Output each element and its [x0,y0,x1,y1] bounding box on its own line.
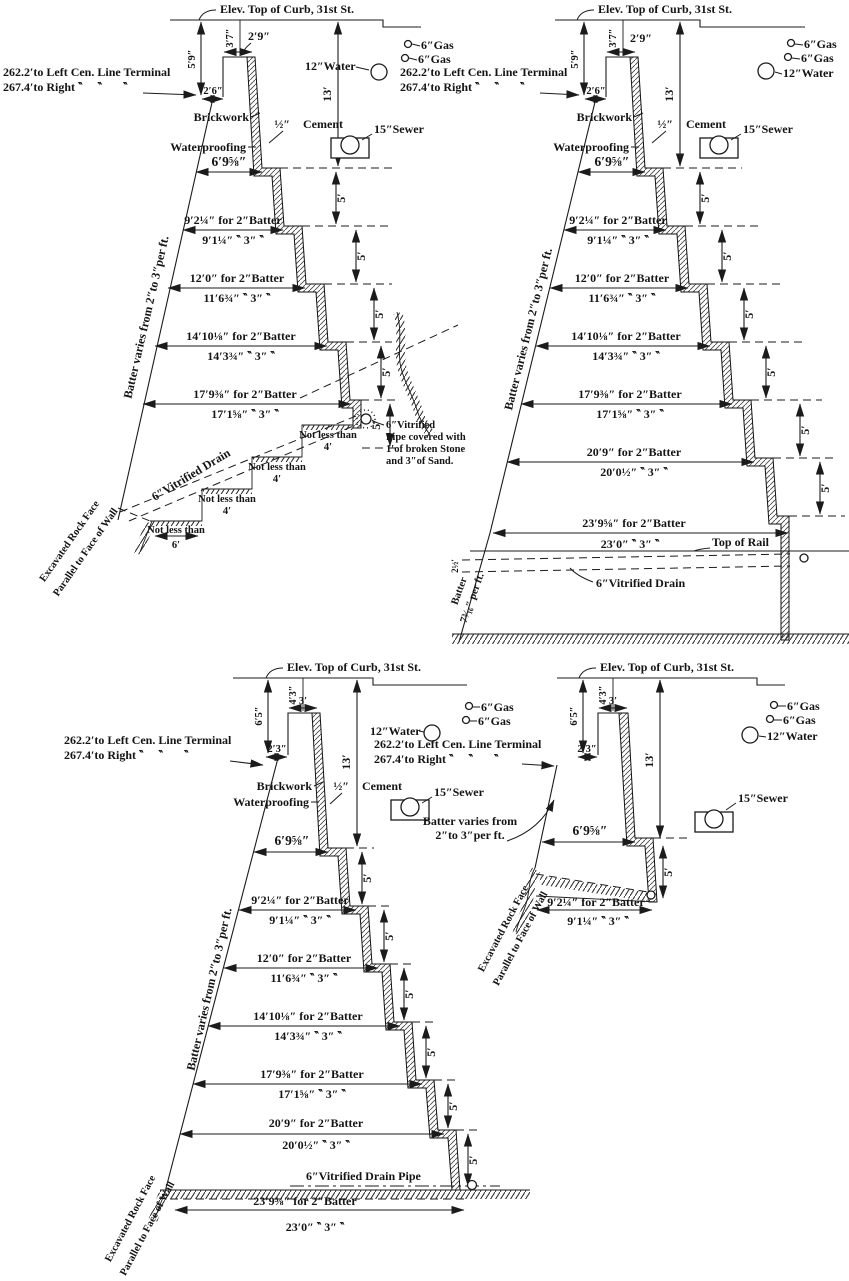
dim-leader-2-9 [243,43,251,52]
gas-main-icon [788,40,795,47]
drain-pipe-label: 6″Vitrified Drain Pipe [306,1169,422,1183]
dim-label-4-3: 4′3″ [288,685,299,704]
brickwork-label: Brickwork [577,110,633,124]
terminal-distance-line2: 267.4′to Right ‶ ‶ ‶ [400,80,525,94]
curb-label: Elev. Top of Curb, 31st St. [287,660,421,674]
dim-label-top-width: 6′9⅝″ [573,823,608,838]
svg-text:9′2¼″ for 2″Batter: 9′2¼″ for 2″Batter [251,893,349,907]
dim-label-13: 13′ [662,86,676,101]
dim-label-top-width: 6′9⅝″ [212,154,247,169]
svg-text:11′6¾″ ‶ 3″ ‶: 11′6¾″ ‶ 3″ ‶ [204,291,271,305]
svg-text:Not less than: Not less than [147,525,205,536]
cement-leader [269,131,283,143]
svg-text:9′2¼″ for 2″Batter: 9′2¼″ for 2″Batter [569,213,667,227]
sewer-icon [710,136,728,154]
batter-slope-line [165,758,278,1192]
svg-text:12′0″ for 2″Batter: 12′0″ for 2″Batter [190,271,285,285]
terminal-distance-line1: 262.2′to Left Cen. Line Terminal [374,737,542,751]
svg-text:14′3¾″ ‶ 3″ ‶: 14′3¾″ ‶ 3″ ‶ [592,349,660,363]
gas-label: 6″Gas [787,699,820,713]
svg-text:5′: 5′ [446,1101,460,1110]
dim-label-2-6: 2′6″ [203,86,222,97]
ground [160,1190,530,1199]
cement-thickness-label: ½″ [274,117,290,131]
svg-text:23′0″ ‶ 3″ ‶: 23′0″ ‶ 3″ ‶ [601,537,660,551]
cement-label: Cement [362,779,402,793]
dim-label-2-6: 2′6″ [586,86,605,97]
ground [452,634,849,644]
gas-label: 6″Gas [801,51,834,65]
svg-text:12′0″ for 2″Batter: 12′0″ for 2″Batter [575,271,670,285]
step-extension-lines [280,168,398,448]
svg-text:Not less than: Not less than [198,494,256,505]
gas-label: 6″Gas [421,38,454,52]
wall-face-band [619,713,657,902]
five-foot-label: 5′ [661,867,675,876]
curb-leader [577,10,594,20]
dim-label-6-5: 6′5″ [254,706,265,725]
utilities: 6″Gas 6″Gas 12″Water 15″Sewer [695,699,820,832]
batter-note: Batter varies from 2″to 3″per ft. [501,247,555,412]
gas-main-icon [466,703,473,710]
svg-text:1′of broken Stone: 1′of broken Stone [386,444,466,455]
svg-text:9′1¼″ ‶ 3″ ‶: 9′1¼″ ‶ 3″ ‶ [567,914,629,928]
drain-pipe-icon [361,414,371,424]
sewer-icon [401,798,419,816]
gas-main-icon [402,55,409,62]
svg-text:17′1⅝″ ‶ 3″ ‶: 17′1⅝″ ‶ 3″ ‶ [596,407,664,421]
svg-text:5′: 5′ [354,251,368,260]
dim-label-13: 13′ [642,752,656,767]
dim-label-2-9: 2′9″ [630,31,652,45]
svg-text:4′: 4′ [324,442,332,453]
cement-thickness-label: ½″ [657,117,673,131]
batter-dimension-rows: 9′2¼″ for 2″Batter 9′1¼″ ‶ 3″ ‶ [537,895,652,928]
svg-text:4′: 4′ [273,474,281,485]
svg-text:20′0½″ ‶ 3″ ‶: 20′0½″ ‶ 3″ ‶ [600,465,668,479]
svg-text:Not less than: Not less than [248,462,306,473]
pipe-note: 6″Vitrified Pipe covered with 1′of broke… [386,420,466,467]
top-of-rail-label: Top of Rail [712,535,770,549]
svg-text:6″Vitrified: 6″Vitrified [386,420,435,431]
curb-label: Elev. Top of Curb, 31st St. [600,660,734,674]
svg-text:11′6¾″ ‶ 3″ ‶: 11′6¾″ ‶ 3″ ‶ [589,291,656,305]
svg-text:5′: 5′ [818,483,832,492]
brickwork-label: Brickwork [194,110,250,124]
drain-pipe-icon [647,891,655,899]
retaining-wall-sections-figure: Elev. Top of Curb, 31st St. 5′9″ 3′7″ 2′… [0,0,849,1281]
water-main-icon [758,63,774,79]
gas-main-icon [405,41,412,48]
curb-leader [579,668,596,678]
svg-text:5′: 5′ [372,309,386,318]
curb-label: Elev. Top of Curb, 31st St. [220,2,354,16]
batter-slope-line [535,765,557,868]
svg-text:5′: 5′ [424,1047,438,1056]
gas-main-icon [767,716,774,723]
svg-text:20′9″ for 2″Batter: 20′9″ for 2″Batter [587,445,682,459]
svg-text:14′10⅛″ for 2″Batter: 14′10⅛″ for 2″Batter [186,329,296,343]
section-a-wall: Elev. Top of Curb, 31st St. 5′9″ 3′7″ 2′… [3,2,466,599]
drain-label: 6″Vitrified Drain [596,576,685,590]
dim-label-13: 13′ [339,754,353,769]
batter-note-line2: 2″to 3″per ft. [435,828,504,842]
dim-label-2-3: 2′3″ [577,744,596,755]
dim-label-6-5: 6′5″ [569,706,580,725]
gas-label: 6″Gas [783,713,816,727]
waterproofing-label: Waterproofing [553,140,629,154]
svg-text:11′6¾″ ‶ 3″ ‶: 11′6¾″ ‶ 3″ ‶ [271,971,338,985]
gas-main-icon [463,717,470,724]
svg-text:20′9″ for 2″Batter: 20′9″ for 2″Batter [269,1116,364,1130]
waterproofing-label: Waterproofing [233,795,309,809]
dim-label-3-7: 3′7″ [225,28,236,47]
terminal-distance-line1: 262.2′to Left Cen. Line Terminal [3,65,171,79]
batter-slope-line [490,98,596,533]
sewer-label: 15″Sewer [374,122,425,136]
brickwork-label: Brickwork [257,779,313,793]
svg-text:and 3″of Sand.: and 3″of Sand. [386,456,454,467]
curb-line [557,678,785,685]
svg-text:17′1⅝″ ‶ 3″ ‶: 17′1⅝″ ‶ 3″ ‶ [278,1087,346,1101]
dim-label-top-width: 6′9⅝″ [595,154,630,169]
terminal-arrow [143,93,196,95]
dim-label-3: 3′ [609,696,617,707]
batter-slope-line [118,98,213,520]
waterproofing-label: Waterproofing [170,140,246,154]
terminal-distance-line1: 262.2′to Left Cen. Line Terminal [400,65,568,79]
curb-leader [266,668,283,678]
svg-text:17′9⅜″ for 2″Batter: 17′9⅜″ for 2″Batter [193,387,297,401]
svg-text:4′: 4′ [223,506,231,517]
sewer-label: 15″Sewer [738,791,789,805]
gas-main-icon [771,702,778,709]
gas-label: 6″Gas [418,52,451,66]
cement-label: Cement [686,117,726,131]
svg-text:9′2¼″ for 2″Batter: 9′2¼″ for 2″Batter [184,213,282,227]
terminal-distance-line2: 267.4′to Right ‶ ‶ ‶ [3,80,128,94]
curb-label: Elev. Top of Curb, 31st St. [598,2,732,16]
terminal-arrow [522,764,554,766]
svg-text:14′3¾″ ‶ 3″ ‶: 14′3¾″ ‶ 3″ ‶ [274,1029,342,1043]
dim-label-5-9: 5′9″ [187,49,198,68]
water-main-icon [742,727,758,743]
sewer-label: 15″Sewer [743,122,794,136]
gas-label: 6″Gas [804,37,837,51]
gas-label: 6″Gas [481,700,514,714]
excavated-rock-face: Excavated Rock Face Parallel to Face of … [38,499,152,599]
terminal-arrow [230,761,263,765]
cement-leader [652,131,666,143]
dim-label-3: 3′ [299,696,307,707]
svg-text:20′0½″ ‶ 3″ ‶: 20′0½″ ‶ 3″ ‶ [282,1138,350,1152]
svg-text:5′: 5′ [742,309,756,318]
section-b-wall: Elev. Top of Curb, 31st St. 5′9″ 3′7″ 2′… [400,2,849,644]
svg-text:14′10⅛″ for 2″Batter: 14′10⅛″ for 2″Batter [571,329,681,343]
sewer-icon [341,136,359,154]
excavated-bank [397,312,431,435]
svg-text:5′: 5′ [798,425,812,434]
svg-text:9′1¼″ ‶ 3″ ‶: 9′1¼″ ‶ 3″ ‶ [269,913,331,927]
gas-main-icon [785,54,792,61]
svg-text:9′1¼″ ‶ 3″ ‶: 9′1¼″ ‶ 3″ ‶ [587,233,649,247]
dim-label-13: 13′ [320,86,334,101]
five-foot-dims: 5′ 5′ 5′ 5′ 5′ 5′ [360,852,480,1186]
svg-text:5′: 5′ [720,251,734,260]
svg-text:5′: 5′ [360,873,374,882]
svg-text:5′: 5′ [402,989,416,998]
svg-text:14′3¾″ ‶ 3″ ‶: 14′3¾″ ‶ 3″ ‶ [207,349,275,363]
batter-note: Batter varies from 2″to 3″per ft. [184,906,235,1071]
svg-text:5′: 5′ [334,193,348,202]
cement-label: Cement [303,117,343,131]
water-main-label: 12″Water [370,724,421,738]
drawing-sheet: Elev. Top of Curb, 31st St. 5′9″ 3′7″ 2′… [0,0,849,1281]
gas-label: 6″Gas [478,714,511,728]
wall-face-band [247,57,361,428]
water-main-label: 12″Water [305,59,356,73]
water-main-icon [371,64,387,80]
dim-label-5-9: 5′9″ [570,49,581,68]
terminal-distance-line1: 262.2′to Left Cen. Line Terminal [64,733,232,747]
cement-thickness-label: ½″ [333,779,349,793]
terminal-distance-line2: 267.4′to Right ‶ ‶ ‶ [374,752,499,766]
dim-label-top-width: 6′9⅝″ [275,833,310,848]
svg-text:9′2¼″ for 2″Batter: 9′2¼″ for 2″Batter [547,895,645,909]
svg-text:5′: 5′ [466,1155,480,1164]
svg-text:17′9⅜″ for 2″Batter: 17′9⅜″ for 2″Batter [578,387,682,401]
sewer-icon [705,810,723,828]
svg-text:23′9⅝″ for 2″Batter: 23′9⅝″ for 2″Batter [582,516,686,530]
svg-text:5′: 5′ [379,367,393,376]
water-main-label: 12″Water [767,729,818,743]
water-main-label: 12″Water [783,66,834,80]
drain-pipe-icon [800,554,808,562]
svg-text:12′0″ for 2″Batter: 12′0″ for 2″Batter [257,951,352,965]
utilities: 6″Gas 6″Gas 12″Water 15″Sewer [700,37,837,158]
svg-text:23′0″ ‶ 3″ ‶: 23′0″ ‶ 3″ ‶ [286,1220,345,1234]
batter-note-line1: Batter varies from [423,814,517,828]
excavated-rock-face: Excavated Rock Face Parallel to Face of … [103,1173,177,1277]
svg-text:5′: 5′ [764,367,778,376]
dim-label-4-3: 4′3″ [598,685,609,704]
dim-label-3-7: 3′7″ [608,28,619,47]
terminal-arrow [540,93,579,95]
svg-text:5′: 5′ [698,193,712,202]
section-d-wall: Elev. Top of Curb, 31st St. 6′5″ 4′3″ 3′… [374,660,820,988]
svg-text:17′1⅝″ ‶ 3″ ‶: 17′1⅝″ ‶ 3″ ‶ [211,407,279,421]
svg-text:Pipe covered with: Pipe covered with [386,432,466,443]
drain-pipe-icon [468,1181,477,1190]
excavated-rock-face: Excavated Rock Face Parallel to Face of … [476,868,550,988]
svg-text:17′9⅜″ for 2″Batter: 17′9⅜″ for 2″Batter [260,1067,364,1081]
curb-line [170,20,421,27]
svg-text:9′1¼″ ‶ 3″ ‶: 9′1¼″ ‶ 3″ ‶ [202,233,264,247]
sewer-label: 15″Sewer [434,785,485,799]
svg-text:14′10⅛″ for 2″Batter: 14′10⅛″ for 2″Batter [253,1009,363,1023]
dim-label-2-5: 2½′ [450,559,460,573]
cement-leader [330,793,342,804]
dim-label-2-3: 2′3″ [267,744,286,755]
svg-text:6′: 6′ [172,540,180,551]
vitrified-drain: 6″Vitrified Drain [462,554,790,590]
curb-leader [199,10,216,20]
svg-text:5′: 5′ [382,931,396,940]
dim-label-2-9: 2′9″ [248,29,270,43]
terminal-distance-line2: 267.4′to Right ‶ ‶ ‶ [64,748,189,762]
